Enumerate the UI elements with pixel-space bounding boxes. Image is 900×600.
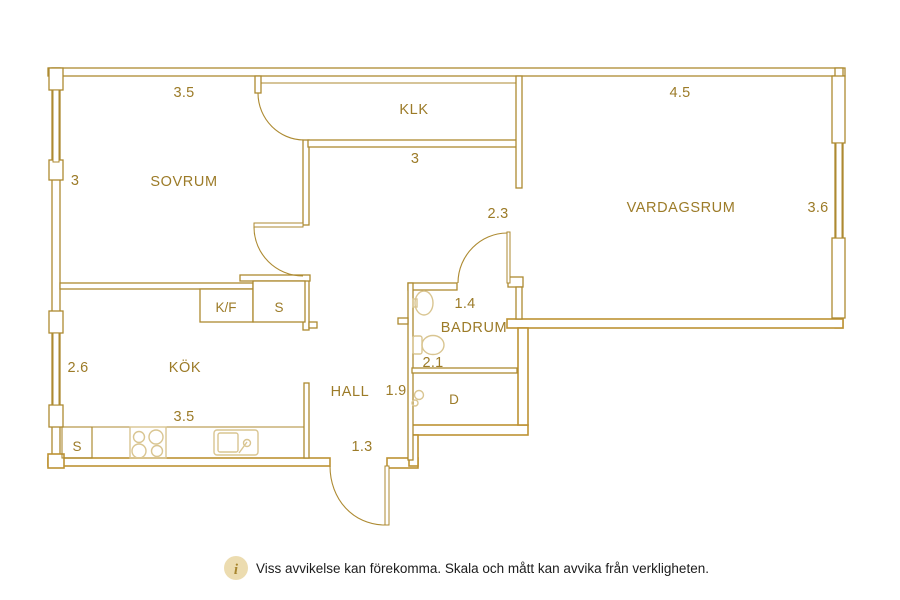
wall-badrum-top bbox=[408, 283, 457, 290]
room-label-sovrum: SOVRUM bbox=[150, 174, 217, 190]
door-leaf-sovrum bbox=[254, 223, 303, 227]
wall-d-bottom bbox=[409, 425, 528, 435]
window-kitchen-icon bbox=[53, 333, 59, 405]
wall-vardagsrum-bottom bbox=[507, 319, 843, 328]
door-arc-entry bbox=[330, 466, 385, 525]
post bbox=[49, 68, 63, 90]
door-arc-sovrum bbox=[254, 227, 303, 276]
wall-kok-hall bbox=[304, 383, 309, 458]
wall-top bbox=[48, 68, 845, 76]
measurement-hall-depth: 1.9 bbox=[385, 383, 406, 399]
wall-tick bbox=[309, 322, 317, 328]
room-label-hall: HALL bbox=[331, 384, 370, 400]
post bbox=[49, 405, 63, 427]
door-leaf-badrum bbox=[507, 232, 510, 283]
measurement-kok-depth: 2.6 bbox=[67, 360, 88, 376]
wall-bottom-left bbox=[48, 458, 330, 466]
room-label-klk: KLK bbox=[399, 102, 428, 118]
floor-drain-icon bbox=[415, 391, 424, 400]
wall-klk-bottom bbox=[308, 140, 518, 147]
floor-plan: SOVRUM KLK VARDAGSRUM KÖK HALL BADRUM 3.… bbox=[0, 0, 900, 600]
stove-burner-icon bbox=[134, 432, 145, 443]
room-label-badrum: BADRUM bbox=[441, 320, 507, 336]
label-shower-d: D bbox=[449, 392, 459, 407]
wall-sovrum-kok bbox=[60, 283, 253, 289]
room-label-vardagsrum: VARDAGSRUM bbox=[627, 200, 736, 216]
measurement-sovrum-depth: 3 bbox=[71, 173, 79, 189]
measurement-kok-width: 3.5 bbox=[173, 409, 194, 425]
stove-burner-icon bbox=[152, 446, 163, 457]
measurement-klk-width: 3 bbox=[411, 151, 419, 167]
door-arc-badrum bbox=[458, 233, 507, 283]
post bbox=[832, 76, 845, 143]
stove-burner-icon bbox=[132, 444, 146, 458]
post bbox=[49, 311, 63, 333]
wall-sovrum-klk bbox=[303, 140, 309, 225]
measurement-vardagsrum-depth: 3.6 bbox=[807, 200, 828, 216]
window-bedroom-icon bbox=[53, 90, 59, 162]
measurement-badrum-width: 1.4 bbox=[454, 296, 475, 312]
cabinet-label-s-kitchen: S bbox=[72, 439, 81, 454]
door-arc-klk bbox=[258, 93, 304, 140]
windows bbox=[53, 90, 842, 405]
exterior-walls bbox=[48, 68, 845, 468]
wall-klk-door-stub bbox=[255, 76, 261, 93]
measurement-badrum-depth: 2.1 bbox=[422, 355, 443, 371]
wall-d-right bbox=[518, 328, 528, 425]
measurement-hall-width: 1.3 bbox=[351, 439, 372, 455]
wall-klk-vardagsrum bbox=[516, 76, 522, 188]
measurement-vardagsrum-width: 4.5 bbox=[669, 85, 690, 101]
cabinet-label-s-bedroom: S bbox=[274, 300, 283, 315]
wall-badrum-right bbox=[516, 287, 522, 319]
post bbox=[49, 160, 63, 180]
cabinet-label-kf: K/F bbox=[215, 300, 236, 315]
stove-burner-icon bbox=[149, 430, 163, 444]
footer: i Viss avvikelse kan förekomma. Skala oc… bbox=[224, 556, 709, 580]
measurement-sovrum-width: 3.5 bbox=[173, 85, 194, 101]
measurement-hall-upper-width: 2.3 bbox=[487, 206, 508, 222]
window-livingroom-icon bbox=[836, 143, 842, 238]
room-label-kok: KÖK bbox=[169, 358, 201, 376]
kitchen-sink-icon bbox=[214, 430, 258, 455]
kitchen-sink-basin-icon bbox=[218, 433, 238, 452]
toilet-bowl-icon bbox=[422, 336, 444, 355]
toilet-tank-icon bbox=[413, 336, 422, 354]
washbasin-icon bbox=[415, 291, 433, 315]
disclaimer-text: Viss avvikelse kan förekomma. Skala och … bbox=[256, 561, 709, 576]
post bbox=[832, 238, 845, 318]
door-leaf-entry bbox=[385, 466, 389, 525]
wall-tick bbox=[398, 318, 408, 324]
